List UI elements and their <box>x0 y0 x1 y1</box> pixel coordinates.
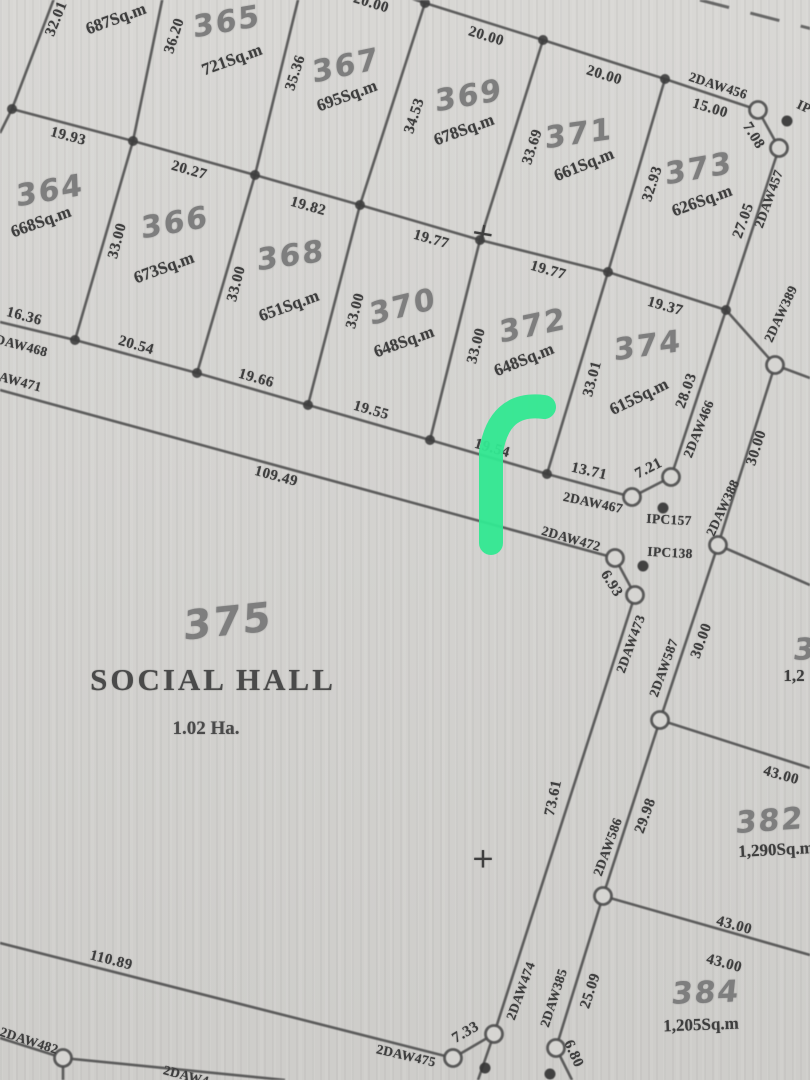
dimension-label: 28.03 <box>673 371 701 411</box>
dimension-label: 19.37 <box>645 294 685 320</box>
dimension-label: 6.80 <box>559 1038 586 1071</box>
dimension-label: 7.33 <box>450 1019 483 1048</box>
dimension-label: 30.00 <box>688 621 716 661</box>
dimension-label: 19.77 <box>528 258 568 284</box>
corner-node-marker <box>538 35 548 45</box>
beacon-circle-marker <box>767 357 784 374</box>
survey-map: 3653673693713733643663683703723743753823… <box>0 0 810 1080</box>
dimension-label: 6.93 <box>596 568 625 601</box>
dimension-label: 33.00 <box>464 326 490 365</box>
dimension-label: 33.00 <box>343 291 369 330</box>
beacon-label: 2DAW473 <box>613 613 649 675</box>
dimension-label: 20.00 <box>466 24 506 51</box>
dimension-label: 20.54 <box>116 333 156 359</box>
beacon-circle-marker <box>486 1026 503 1043</box>
dimension-label: 19.66 <box>236 366 276 392</box>
cross-mark: + <box>471 842 494 875</box>
corner-node-marker <box>721 305 731 315</box>
dimension-label: 20.00 <box>351 0 391 17</box>
plot-number-label: 369 <box>435 72 504 119</box>
beacon-label: 2DAW586 <box>590 816 626 878</box>
green-highlighter-mark <box>491 406 544 543</box>
beacon-circle-marker <box>710 537 727 554</box>
dimension-label: 16.36 <box>4 304 43 330</box>
dimension-label: 19.93 <box>48 124 87 150</box>
beacon-label: 2DAW474 <box>503 960 539 1022</box>
area-label: 1,2 <box>783 666 804 686</box>
dimension-label: 13.71 <box>569 460 608 485</box>
beacon-circle-marker <box>627 587 644 604</box>
beacon-label: IP <box>794 97 810 117</box>
dimension-label: 32.93 <box>639 164 666 204</box>
corner-node-marker <box>542 469 552 479</box>
boundary-line <box>478 1034 494 1080</box>
plot-number-label: 372 <box>498 301 568 351</box>
beacon-label: 2DAW472 <box>540 523 603 555</box>
beacon-label: 2DAW389 <box>761 283 801 345</box>
plot-number-label: 382 <box>735 801 806 841</box>
beacon-circle-marker <box>771 140 788 157</box>
beacon-label: 2DAW482 <box>0 1024 60 1058</box>
plot-number-label: 366 <box>141 199 210 246</box>
corner-node-marker <box>425 435 435 445</box>
plot-number-label: 365 <box>193 0 262 46</box>
dimension-label: 109.49 <box>252 463 299 491</box>
plot-number-label: 374 <box>614 324 682 369</box>
dimension-label: 7.21 <box>633 455 666 483</box>
boundary-line <box>603 896 810 955</box>
beacon-label: 2DAW468 <box>0 329 49 360</box>
corner-node-marker <box>420 0 430 8</box>
dimension-label: 43.00 <box>704 951 743 977</box>
area-label: 1,205Sq.m <box>663 1014 739 1037</box>
plot-number-label: 3 <box>791 633 810 668</box>
boundary-line <box>12 109 726 310</box>
beacon-circle-marker <box>445 1050 462 1067</box>
dimension-label: 33.01 <box>580 359 606 398</box>
beacon-circle-marker <box>663 469 680 486</box>
beacon-label: 2DAW4 <box>161 1062 210 1080</box>
corner-node-marker <box>192 368 202 378</box>
dimension-label: 43.00 <box>714 913 753 939</box>
area-label: 615Sq.m <box>606 374 671 420</box>
dimension-label: 30.00 <box>743 428 770 468</box>
boundary-line <box>0 943 453 1058</box>
dimension-label: 7.08 <box>738 120 767 153</box>
plot-number-label: 368 <box>257 234 325 279</box>
beacon-label: IPC138 <box>647 544 693 562</box>
corner-node-marker <box>7 104 17 114</box>
area-label: 687Sq.m <box>83 0 149 39</box>
dimension-label: 25.09 <box>577 971 604 1011</box>
corner-node-marker <box>355 200 365 210</box>
cross-mark: + <box>469 215 498 252</box>
corner-node-marker <box>70 335 80 345</box>
corner-node-marker <box>603 267 613 277</box>
dimension-label: 33.69 <box>519 127 546 167</box>
dimension-label: 29.98 <box>632 796 660 836</box>
dimension-label: 19.54 <box>472 436 512 462</box>
boundary-line <box>718 545 810 585</box>
corner-node-marker <box>250 170 260 180</box>
dimension-label: 19.55 <box>351 398 391 424</box>
beacon-circle-marker <box>652 712 669 729</box>
area-label: 651Sq.m <box>256 286 322 326</box>
dimension-label: 15.00 <box>690 96 730 123</box>
boundary-line <box>775 365 810 378</box>
ipc-dot-marker <box>782 116 793 127</box>
corner-node-marker <box>303 400 313 410</box>
dimension-label: 33.00 <box>224 264 250 303</box>
boundary-line <box>660 720 810 768</box>
plot-number-label: 375 <box>183 594 274 650</box>
dimension-label: 73.61 <box>542 779 566 818</box>
beacon-label: IPC157 <box>646 511 692 529</box>
dimension-label: 35.36 <box>282 53 309 93</box>
dimension-label: 34.53 <box>401 96 428 136</box>
beacon-circle-marker <box>607 550 624 567</box>
beacon-label: 2DAW388 <box>703 477 743 539</box>
beacon-label: 2DAW467 <box>562 489 625 517</box>
corner-node-marker <box>660 74 670 84</box>
dimension-label: 32.01 <box>42 0 71 39</box>
beacon-circle-marker <box>595 888 612 905</box>
ipc-dot-marker <box>545 1069 556 1080</box>
dimension-label: 110.89 <box>88 947 134 974</box>
dimension-label: 33.00 <box>105 221 131 260</box>
area-label: 673Sq.m <box>131 248 197 288</box>
area-label: 721Sq.m <box>199 40 265 80</box>
plot-number-label: 384 <box>670 974 742 1012</box>
dimension-label: 20.27 <box>169 158 209 184</box>
title-label: SOCIAL HALL <box>90 662 336 698</box>
area-label: 1,290Sq.m <box>738 838 810 862</box>
beacon-label: 2DAW587 <box>646 637 682 699</box>
dimension-label: 19.82 <box>288 194 328 220</box>
dashed-boundary-line <box>700 0 810 30</box>
dimension-label: 20.00 <box>584 63 624 90</box>
beacon-label: 2DAW471 <box>0 364 43 395</box>
title-label: 1.02 Ha. <box>172 718 239 740</box>
beacon-circle-marker <box>624 489 641 506</box>
beacon-label: 2DAW475 <box>375 1041 438 1070</box>
beacon-label: 2DAW457 <box>751 168 787 230</box>
dimension-label: 36.20 <box>161 16 188 56</box>
ipc-dot-marker <box>638 561 649 572</box>
ipc-dot-marker <box>480 1063 491 1074</box>
beacon-label: 2DAW385 <box>537 967 571 1030</box>
corner-node-marker <box>128 136 138 146</box>
dimension-label: 43.00 <box>761 763 801 789</box>
dimension-label: 19.77 <box>411 227 451 253</box>
beacon-circle-marker <box>750 102 767 119</box>
